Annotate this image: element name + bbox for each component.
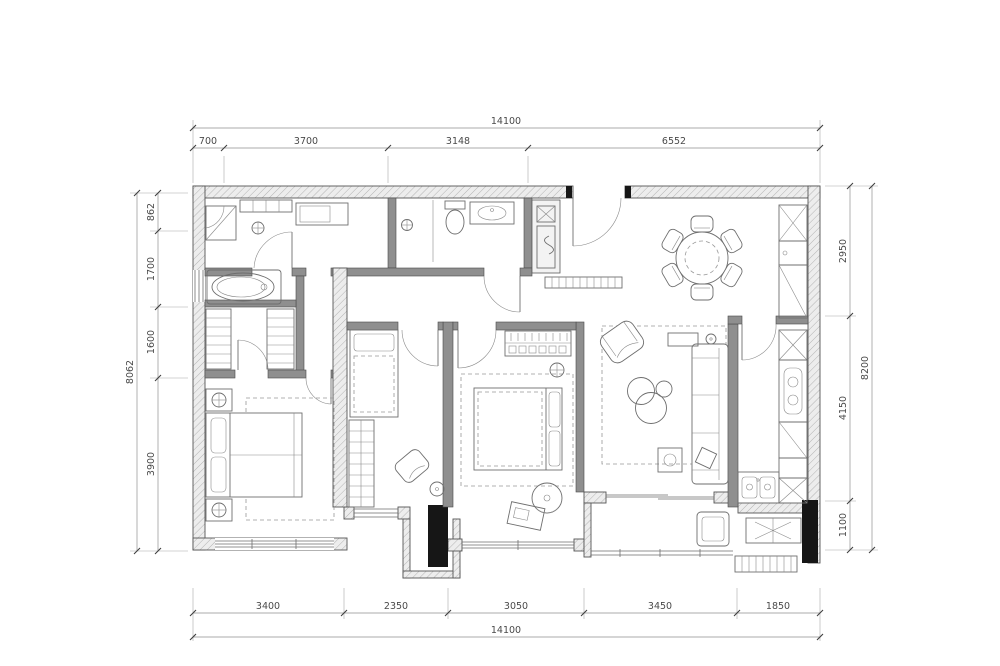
coffee-table-set	[628, 378, 673, 424]
wardrobe-bedroom2	[349, 420, 374, 507]
dining-tall-cabinet	[779, 205, 807, 318]
dim-left-seg-1700: 1700	[146, 257, 157, 281]
dim-right-overall: 8200	[860, 356, 871, 380]
bathroom2-door	[484, 276, 520, 312]
single-bed	[350, 330, 398, 417]
dining-chair	[691, 216, 713, 232]
dim-right-seg-4150: 4150	[838, 396, 849, 420]
laundry-counter	[296, 203, 348, 225]
dim-left-seg-3900: 3900	[146, 452, 157, 476]
dim-bottom-seg-1850: 1850	[766, 601, 790, 612]
ac-louver-vent	[735, 556, 797, 572]
entry-hall	[545, 277, 622, 288]
entry-jamb-right	[625, 186, 631, 198]
desk	[507, 502, 545, 531]
shoe-cabinet	[545, 277, 622, 288]
desk-chair	[532, 483, 562, 513]
dining-area	[660, 205, 807, 318]
kitchen	[738, 330, 807, 503]
sofa	[692, 344, 728, 484]
shower-stall	[206, 206, 236, 240]
entry-door	[573, 198, 621, 246]
balcony-basin	[697, 512, 729, 546]
dim-top-seg-6552: 6552	[662, 136, 686, 147]
washing-machine-platform	[746, 518, 801, 543]
armchair	[597, 318, 646, 366]
living-room	[597, 318, 728, 484]
closet-door	[238, 340, 268, 370]
kitchen-door	[742, 324, 776, 360]
window-master-bedroom	[215, 538, 334, 550]
vanity-sink-1	[252, 222, 264, 234]
dim-left-seg-862: 862	[146, 203, 157, 221]
bedroom2-door	[402, 330, 438, 366]
bedroom-3	[461, 331, 573, 530]
end-table	[658, 448, 682, 472]
dim-bottom-seg-3050: 3050	[504, 601, 528, 612]
toilet	[445, 201, 465, 234]
dimension-left: 8062 862 1700 1600 3900	[125, 190, 188, 554]
structural-wall-black	[802, 500, 818, 563]
entry-jamb-left	[566, 186, 572, 198]
dining-table	[676, 232, 728, 284]
bedroom-2	[349, 330, 444, 507]
utility-shaft	[532, 200, 560, 273]
dim-left-overall: 8062	[125, 360, 136, 384]
vanity-sink-2	[470, 202, 514, 224]
dim-bottom-seg-3400: 3400	[256, 601, 280, 612]
closet-rack-right	[267, 309, 294, 369]
dim-right-seg-2950: 2950	[838, 239, 849, 263]
window-bedroom2	[354, 509, 398, 517]
dimension-bottom: 3400 2350 3050 3450 1850 14100	[190, 588, 823, 641]
dim-left-seg-1600: 1600	[146, 330, 157, 354]
dimension-right: 2950 4150 1100 8200	[825, 183, 878, 553]
ceiling-lamp-symbol	[550, 363, 564, 377]
dim-top-overall: 14100	[491, 116, 521, 127]
window-bedroom3	[462, 540, 574, 550]
structural-column	[428, 505, 448, 567]
sliding-door-living-balcony	[606, 495, 714, 499]
lounge-chair	[393, 447, 431, 485]
dining-chair	[719, 227, 744, 254]
kitchen-sink-counter	[738, 472, 779, 503]
side-stool	[430, 482, 444, 496]
dining-chair	[719, 261, 744, 288]
bed3	[474, 388, 562, 470]
double-bed	[206, 413, 302, 497]
dining-chair	[691, 284, 713, 300]
wardrobe-bedroom3	[505, 331, 571, 356]
bathroom-2	[402, 200, 515, 262]
dining-chair	[660, 261, 685, 288]
wall-shelf	[240, 200, 292, 212]
nightstand	[206, 499, 232, 521]
dimension-top: 14100 700 3700 3148 6552	[190, 116, 823, 183]
dim-right-seg-1100: 1100	[838, 513, 849, 537]
dining-chair	[660, 227, 685, 254]
dim-bottom-seg-3450: 3450	[648, 601, 672, 612]
window-left-wall	[193, 270, 205, 302]
bathroom-1	[206, 200, 348, 304]
dim-bottom-seg-2350: 2350	[384, 601, 408, 612]
master-bedroom-door	[306, 378, 331, 404]
kitchen-tall-units	[779, 330, 807, 503]
balcony	[697, 512, 801, 546]
master-bedroom	[206, 389, 334, 521]
floor-plan-canvas: 14100 700 3700 3148 6552 3400 2350 3050 …	[0, 0, 1000, 666]
floor-plan-drawing: 14100 700 3700 3148 6552 3400 2350 3050 …	[0, 0, 1000, 666]
walk-in-closet	[206, 309, 294, 369]
closet-rack-left	[206, 309, 231, 369]
floor-drain	[402, 220, 413, 231]
balcony-glazing	[591, 549, 733, 557]
dim-top-seg-3148: 3148	[446, 136, 470, 147]
dim-bottom-overall: 14100	[491, 625, 521, 636]
bedroom3-door	[458, 330, 496, 368]
dim-top-seg-700: 700	[199, 136, 217, 147]
bathroom1-door	[254, 232, 292, 268]
nightstand	[206, 389, 232, 411]
dim-top-seg-3700: 3700	[294, 136, 318, 147]
